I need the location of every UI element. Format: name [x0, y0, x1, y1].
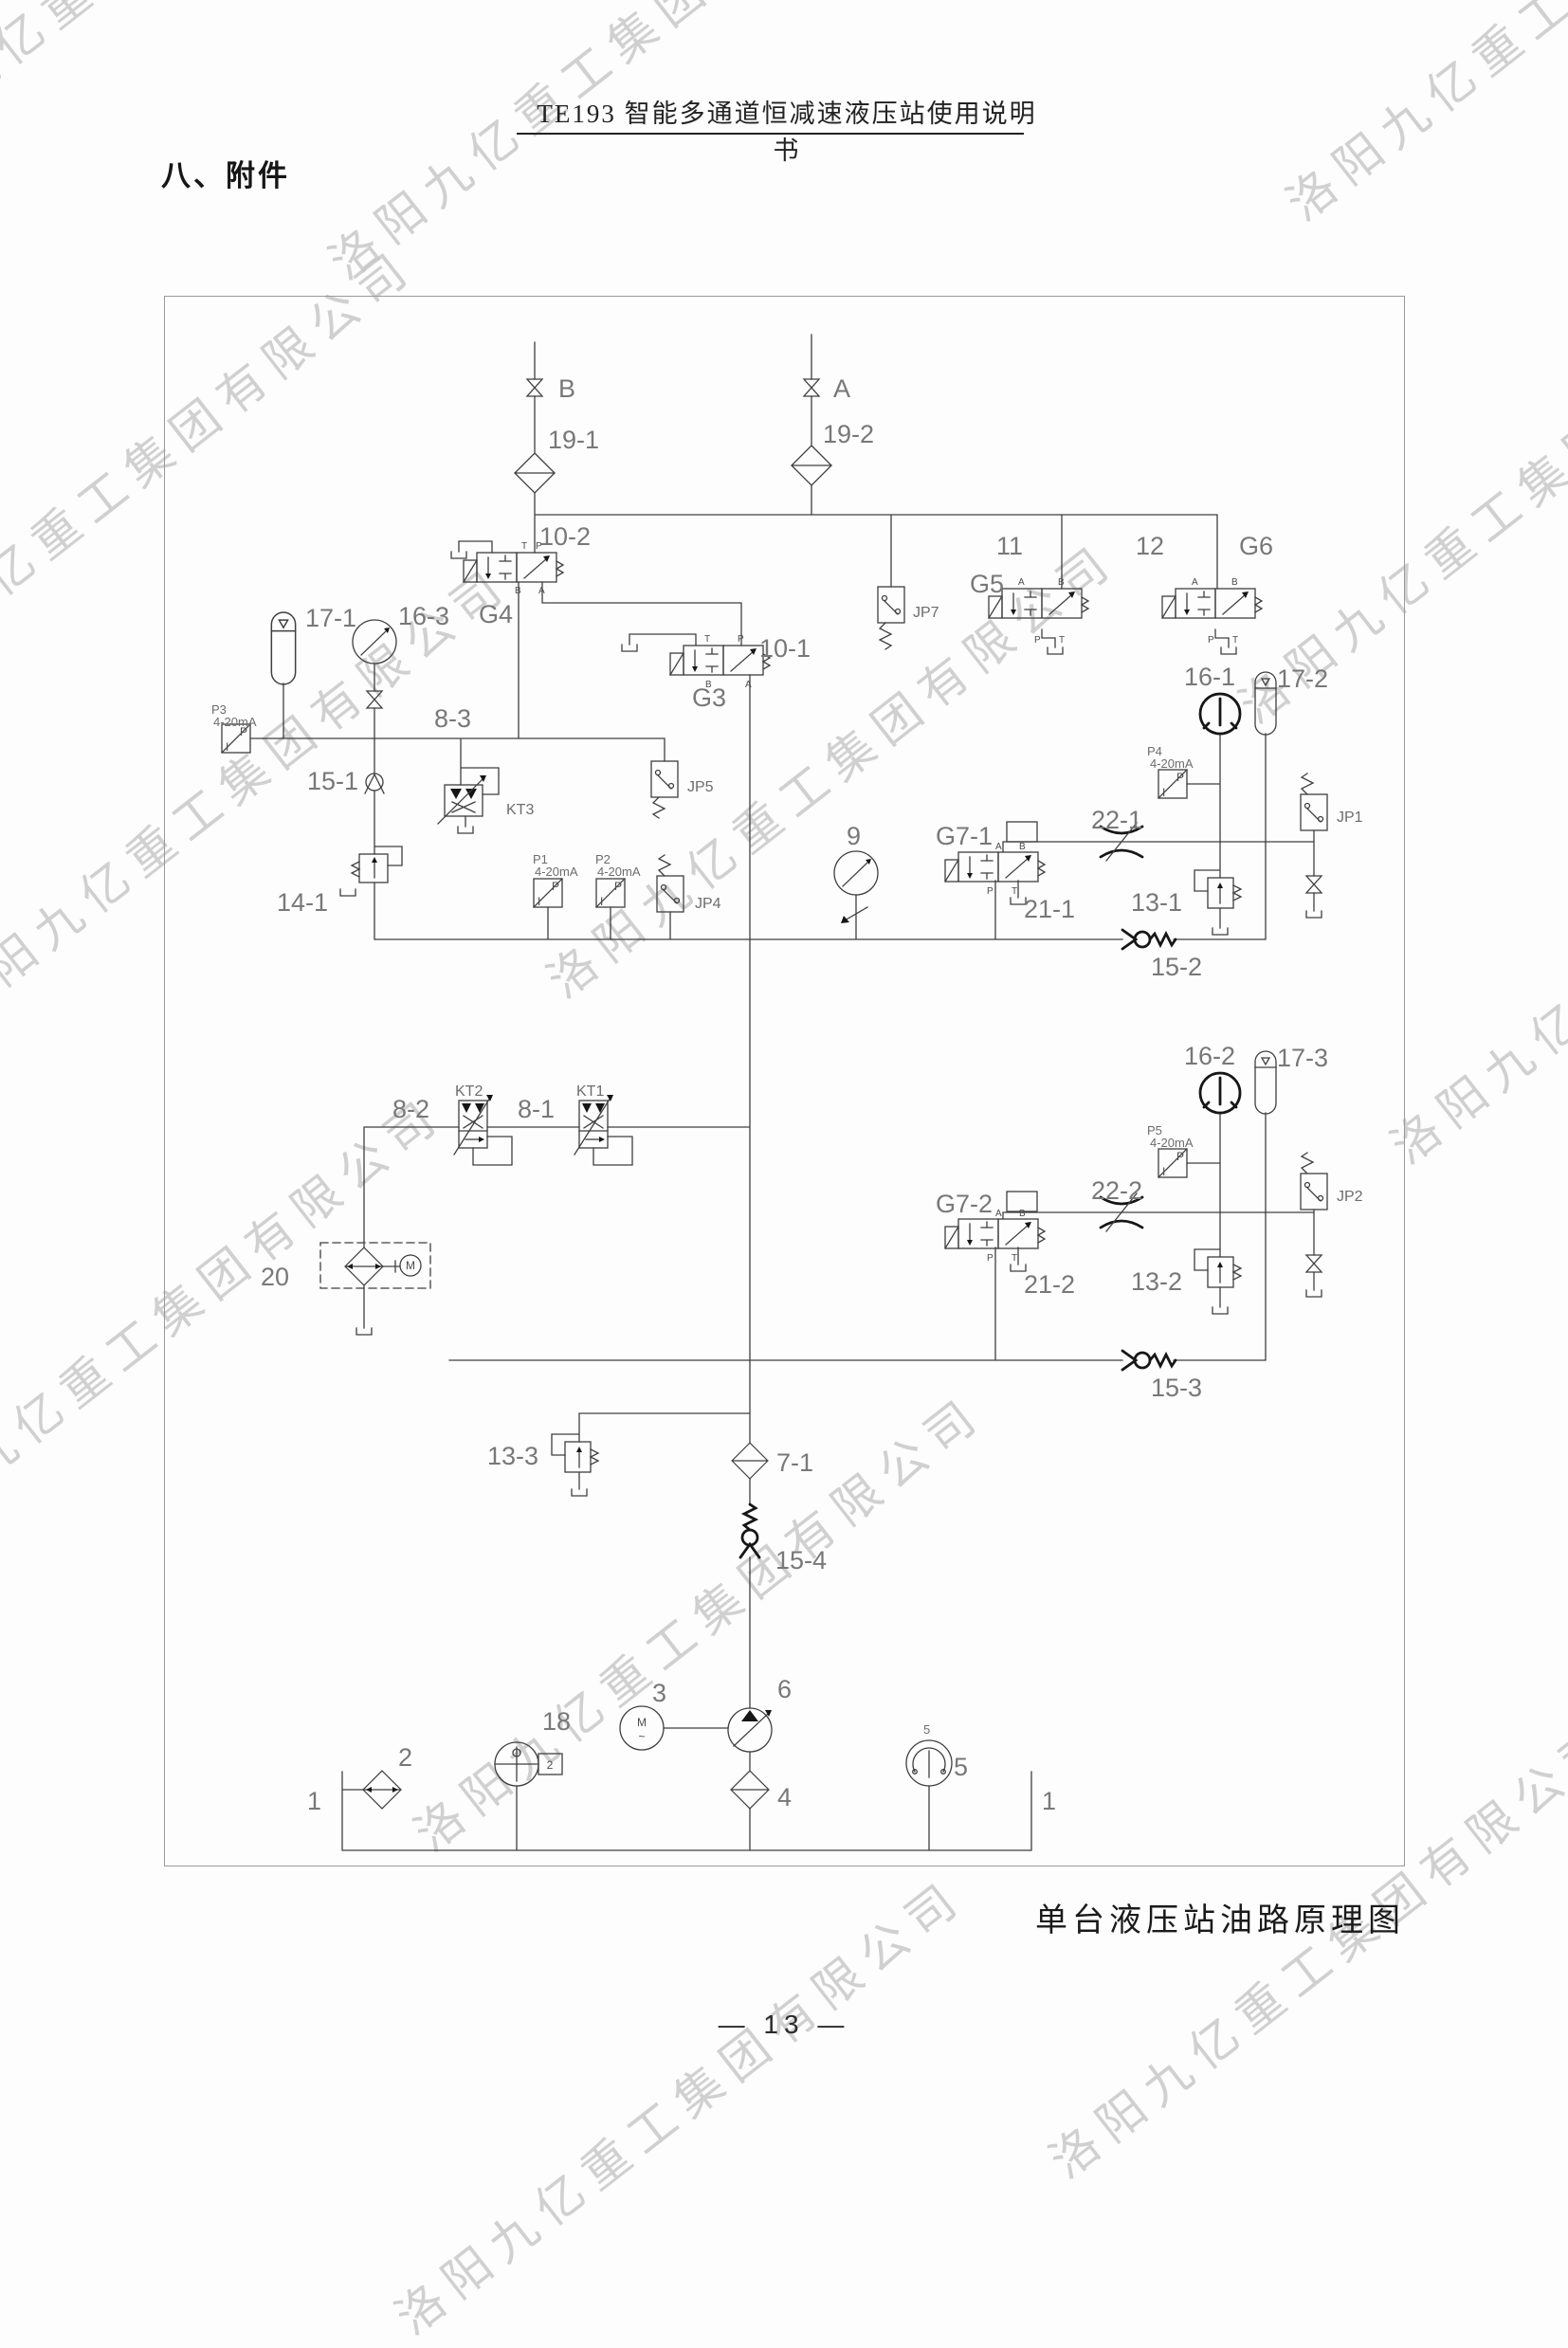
pressure-transmitter-P1: P I	[534, 879, 562, 908]
label-7-1: 7-1	[776, 1448, 813, 1477]
letter-P: P	[1176, 771, 1184, 784]
accumulator-17-2	[1255, 672, 1276, 735]
unloader-valve-13-3	[565, 1442, 598, 1472]
label-8-3: 8-3	[434, 704, 471, 733]
label-B: B	[558, 374, 575, 403]
label-G6: G6	[1239, 532, 1273, 560]
port-B: B	[1019, 842, 1026, 852]
shutoff-valve-A	[804, 379, 819, 396]
relief-valve-14-1	[352, 854, 388, 883]
label-JP4: JP4	[695, 896, 721, 912]
label-10-1: 10-1	[759, 634, 811, 663]
pressure-transmitter-P5: P I	[1158, 1149, 1187, 1178]
label-22-2: 22-2	[1091, 1176, 1142, 1205]
letter-I: I	[226, 740, 228, 754]
check-valve-15-1	[365, 774, 384, 793]
check-valve-15-4	[740, 1504, 759, 1557]
port-A: A	[1192, 577, 1198, 588]
label-JP7: JP7	[913, 605, 939, 621]
letter-I: I	[1162, 786, 1165, 799]
label-1-left: 1	[307, 1787, 321, 1815]
port-P: P	[1208, 635, 1214, 646]
port-B: B	[1019, 1209, 1026, 1219]
port-A: A	[745, 680, 752, 690]
pressure-switch-JP1	[1301, 774, 1327, 830]
port-A: A	[995, 1209, 1002, 1219]
label-P3-range: 4-20mA	[213, 715, 257, 729]
pressure-switch-JP5	[651, 761, 678, 818]
title-underline	[517, 133, 1024, 135]
filter-7-1	[732, 1443, 768, 1479]
shutoff-valve-B	[527, 379, 542, 396]
pipe-network	[250, 335, 1314, 1850]
label-2: 2	[398, 1743, 412, 1772]
suction-filter-4	[731, 1771, 769, 1809]
port-A: A	[995, 842, 1002, 852]
figure-caption: 单台液压站油路原理图	[948, 1894, 1405, 1940]
label-20: 20	[261, 1263, 289, 1291]
watermark: 洛阳九亿重工集团有限公司	[379, 1860, 977, 2348]
pressure-transmitter-P2: P I	[596, 879, 625, 908]
port-P: P	[987, 886, 994, 897]
pressure-switch-JP7	[878, 587, 904, 649]
label-3: 3	[652, 1679, 666, 1707]
label-19-1: 19-1	[548, 426, 599, 454]
label-P2-range: 4-20mA	[597, 865, 641, 879]
label-22-1: 22-1	[1091, 806, 1142, 834]
air-breather-2	[363, 1771, 401, 1809]
label-17-1: 17-1	[305, 604, 356, 632]
label-P4-range: 4-20mA	[1150, 756, 1194, 771]
pressure-transmitter-P4: P I	[1158, 770, 1187, 799]
motor-ac: ~	[638, 1730, 645, 1743]
pressure-gauge-16-1	[1200, 694, 1240, 734]
label-4: 4	[777, 1783, 792, 1811]
label-G4: G4	[479, 600, 513, 628]
circulation-filter-unit-20: M	[320, 1243, 430, 1288]
unloader-valve-13-1	[1208, 878, 1241, 908]
solenoid-valve-G3: T P B A	[670, 634, 770, 690]
filter-19-1	[515, 453, 555, 493]
motor-M: M	[637, 1716, 647, 1729]
letter-I: I	[600, 895, 603, 908]
label-12: 12	[1136, 532, 1164, 560]
label-13-2: 13-2	[1131, 1267, 1182, 1296]
label-18: 18	[542, 1707, 571, 1736]
label-15-4: 15-4	[775, 1546, 827, 1574]
page-number: — 13 —	[0, 2010, 1568, 2040]
label-13-1: 13-1	[1131, 888, 1182, 917]
port-P: P	[987, 1253, 994, 1264]
label-G7-2: G7-2	[936, 1190, 993, 1218]
letter-I: I	[1162, 1165, 1165, 1178]
port-A: A	[1018, 577, 1025, 588]
label-11: 11	[996, 532, 1023, 560]
port-P: P	[738, 634, 744, 645]
label-16-1: 16-1	[1184, 663, 1235, 691]
motor-M: M	[406, 1259, 415, 1272]
label-15-1: 15-1	[307, 767, 358, 795]
document-title: TE193 智能多通道恒减速液压站使用说明书	[531, 93, 1043, 167]
gauge-shutoff-valve	[367, 691, 382, 708]
label-JP2: JP2	[1337, 1189, 1363, 1205]
pressure-switch-JP4	[657, 855, 684, 912]
label-8-1: 8-1	[518, 1095, 555, 1123]
label-JP1: JP1	[1337, 810, 1363, 826]
label-16-2: 16-2	[1184, 1042, 1235, 1070]
filter-19-2	[792, 446, 831, 485]
label-KT2: KT2	[455, 1083, 483, 1100]
label-14-1: 14-1	[277, 888, 328, 917]
letter-P: P	[1176, 1150, 1184, 1163]
pressure-gauge-16-3	[353, 620, 396, 664]
port-B: B	[1231, 577, 1238, 588]
throttle-valve-KT3	[438, 775, 486, 824]
label-A: A	[833, 374, 850, 403]
label-KT1: KT1	[576, 1083, 604, 1100]
level-box-label: 2	[547, 1758, 554, 1772]
label-KT3: KT3	[506, 802, 534, 818]
throttle-valve-KT2	[454, 1095, 493, 1155]
label-JP5: JP5	[687, 779, 714, 795]
label-13-3: 13-3	[487, 1442, 538, 1470]
label-21-2: 21-2	[1024, 1270, 1075, 1299]
port-T: T	[704, 634, 710, 645]
label-15-2: 15-2	[1151, 953, 1202, 981]
label-5-small: 5	[923, 1722, 930, 1737]
section-title: 八、附件	[161, 152, 290, 194]
port-T: T	[1059, 635, 1065, 646]
label-6: 6	[777, 1675, 792, 1703]
label-1-right: 1	[1042, 1787, 1056, 1815]
accumulator-17-1	[271, 612, 295, 684]
label-17-3: 17-3	[1277, 1044, 1328, 1072]
port-P: P	[1034, 635, 1041, 646]
check-valve-15-2	[1122, 930, 1176, 949]
drain-shutoff-valve	[1306, 1255, 1322, 1272]
letter-P: P	[614, 880, 622, 893]
pressure-switch-JP2	[1301, 1153, 1327, 1210]
label-P1-range: 4-20mA	[535, 865, 578, 879]
solenoid-valve-G6: A B P T	[1162, 577, 1262, 646]
label-16-3: 16-3	[398, 602, 449, 630]
label-G5: G5	[970, 570, 1004, 598]
label-17-2: 17-2	[1277, 664, 1328, 693]
watermark: 洛阳九亿重工集团有限公司	[1270, 0, 1568, 234]
port-B: B	[1058, 577, 1065, 588]
label-10-2: 10-2	[539, 522, 591, 551]
port-T: T	[1012, 1253, 1017, 1264]
label-8-2: 8-2	[392, 1095, 429, 1123]
label-15-3: 15-3	[1151, 1374, 1202, 1402]
hydraulic-schematic: B 19-1 A 19-2 T P B A 10-2 G4 T P B A 10…	[164, 296, 1405, 1866]
port-T: T	[1012, 886, 1017, 897]
level-gauge-18: 2	[495, 1742, 562, 1786]
label-5: 5	[954, 1753, 968, 1781]
label-21-1: 21-1	[1024, 895, 1075, 923]
port-B: B	[515, 586, 521, 596]
hydraulic-pump-6	[728, 1708, 772, 1752]
letter-P: P	[552, 880, 559, 893]
label-G7-1: G7-1	[936, 822, 993, 850]
pressure-gauge-16-2	[1200, 1073, 1240, 1113]
port-T: T	[521, 541, 527, 552]
accumulator-17-3	[1255, 1051, 1276, 1114]
port-A: A	[538, 586, 545, 596]
letter-I: I	[538, 895, 540, 908]
tank-symbols	[340, 552, 1322, 1496]
thermometer-5: 5	[906, 1722, 952, 1786]
label-9: 9	[847, 822, 861, 850]
label-P5-range: 4-20mA	[1150, 1136, 1194, 1150]
label-G3: G3	[692, 683, 726, 712]
label-19-2: 19-2	[823, 420, 874, 448]
unloader-valve-13-2	[1208, 1257, 1241, 1287]
throttle-valve-KT1	[574, 1095, 613, 1155]
drain-shutoff-valve	[1306, 876, 1322, 893]
check-valve-15-3	[1122, 1351, 1176, 1370]
electric-motor-3: M ~	[620, 1706, 664, 1750]
port-T: T	[1232, 635, 1238, 646]
